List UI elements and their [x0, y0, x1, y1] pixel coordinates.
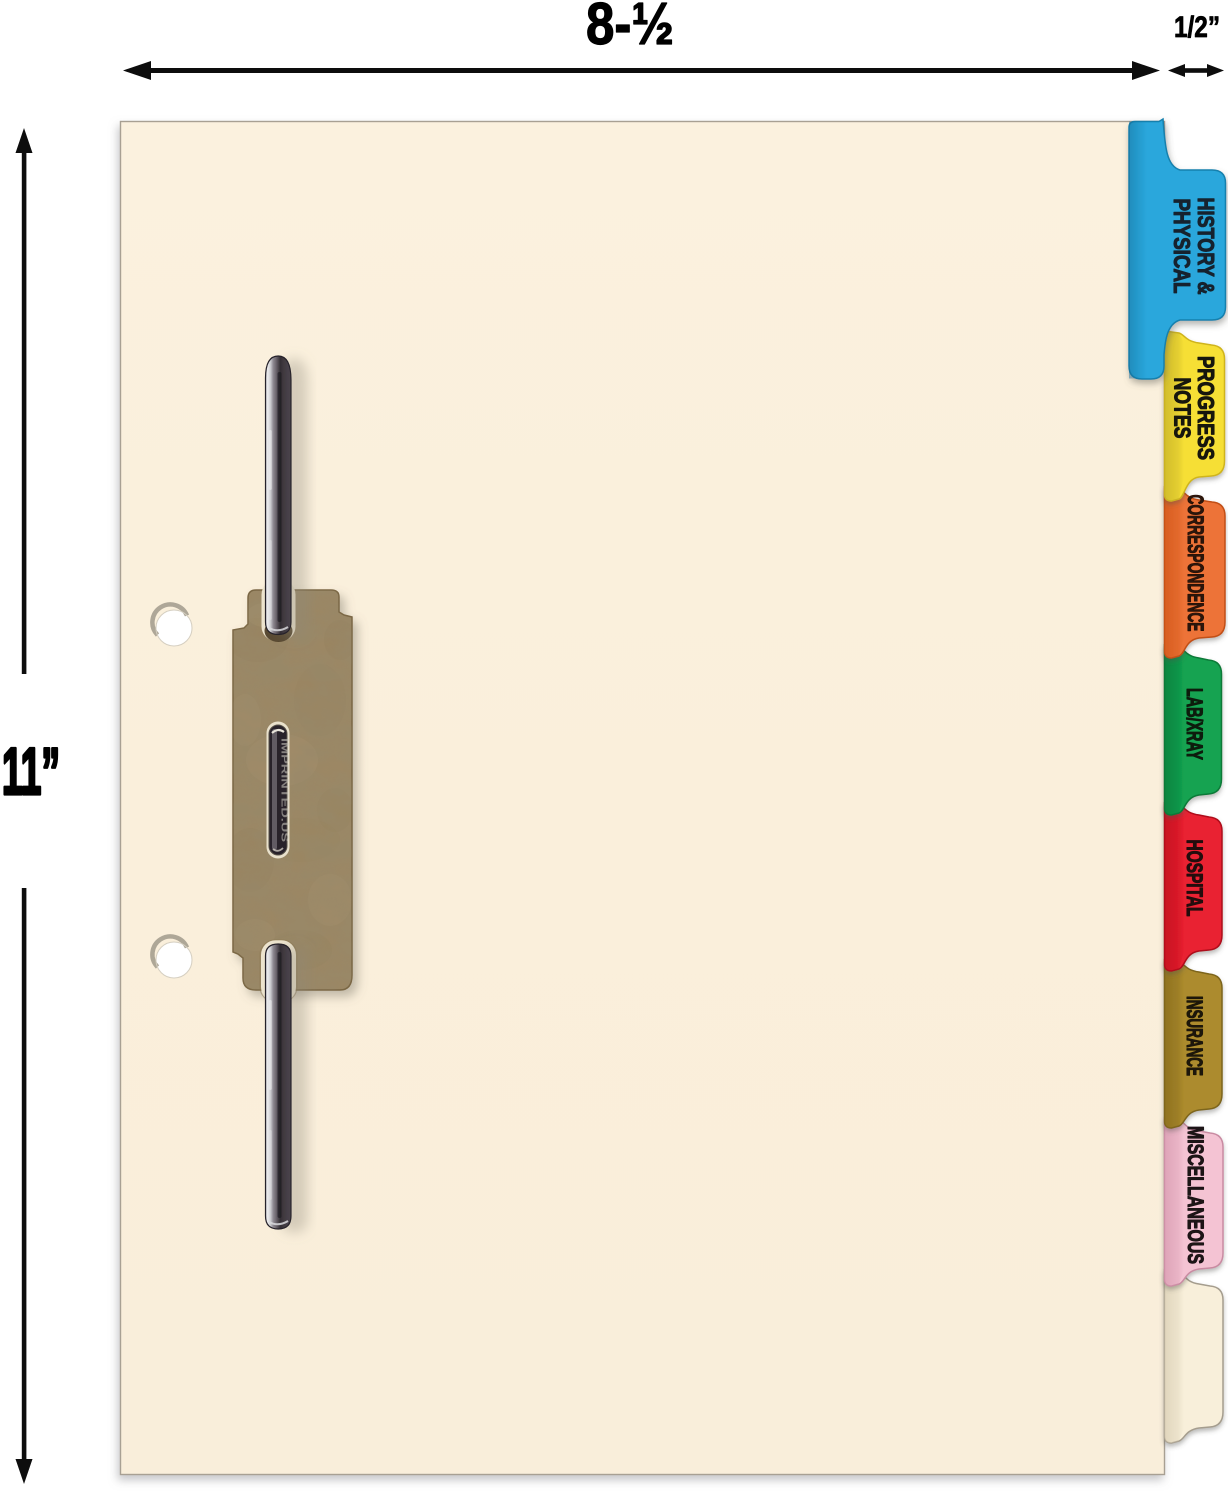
- svg-text:HOSPITAL: HOSPITAL: [1182, 840, 1207, 917]
- svg-text:MISCELLANEOUS: MISCELLANEOUS: [1183, 1126, 1208, 1264]
- svg-text:NOTES: NOTES: [1170, 378, 1196, 439]
- svg-text:LAB/XRAY: LAB/XRAY: [1182, 688, 1207, 760]
- svg-text:11”: 11”: [2, 734, 60, 808]
- svg-text:IMPRINTED.US: IMPRINTED.US: [279, 738, 290, 842]
- svg-text:PHYSICAL: PHYSICAL: [1169, 199, 1195, 294]
- svg-text:HISTORY &: HISTORY &: [1193, 198, 1219, 295]
- svg-text:PROGRESS: PROGRESS: [1193, 356, 1219, 460]
- svg-text:1/2”: 1/2”: [1174, 11, 1220, 44]
- svg-text:CORRESPONDENCE: CORRESPONDENCE: [1183, 495, 1208, 632]
- svg-text:8-½: 8-½: [586, 0, 674, 57]
- svg-text:INSURANCE: INSURANCE: [1182, 996, 1207, 1076]
